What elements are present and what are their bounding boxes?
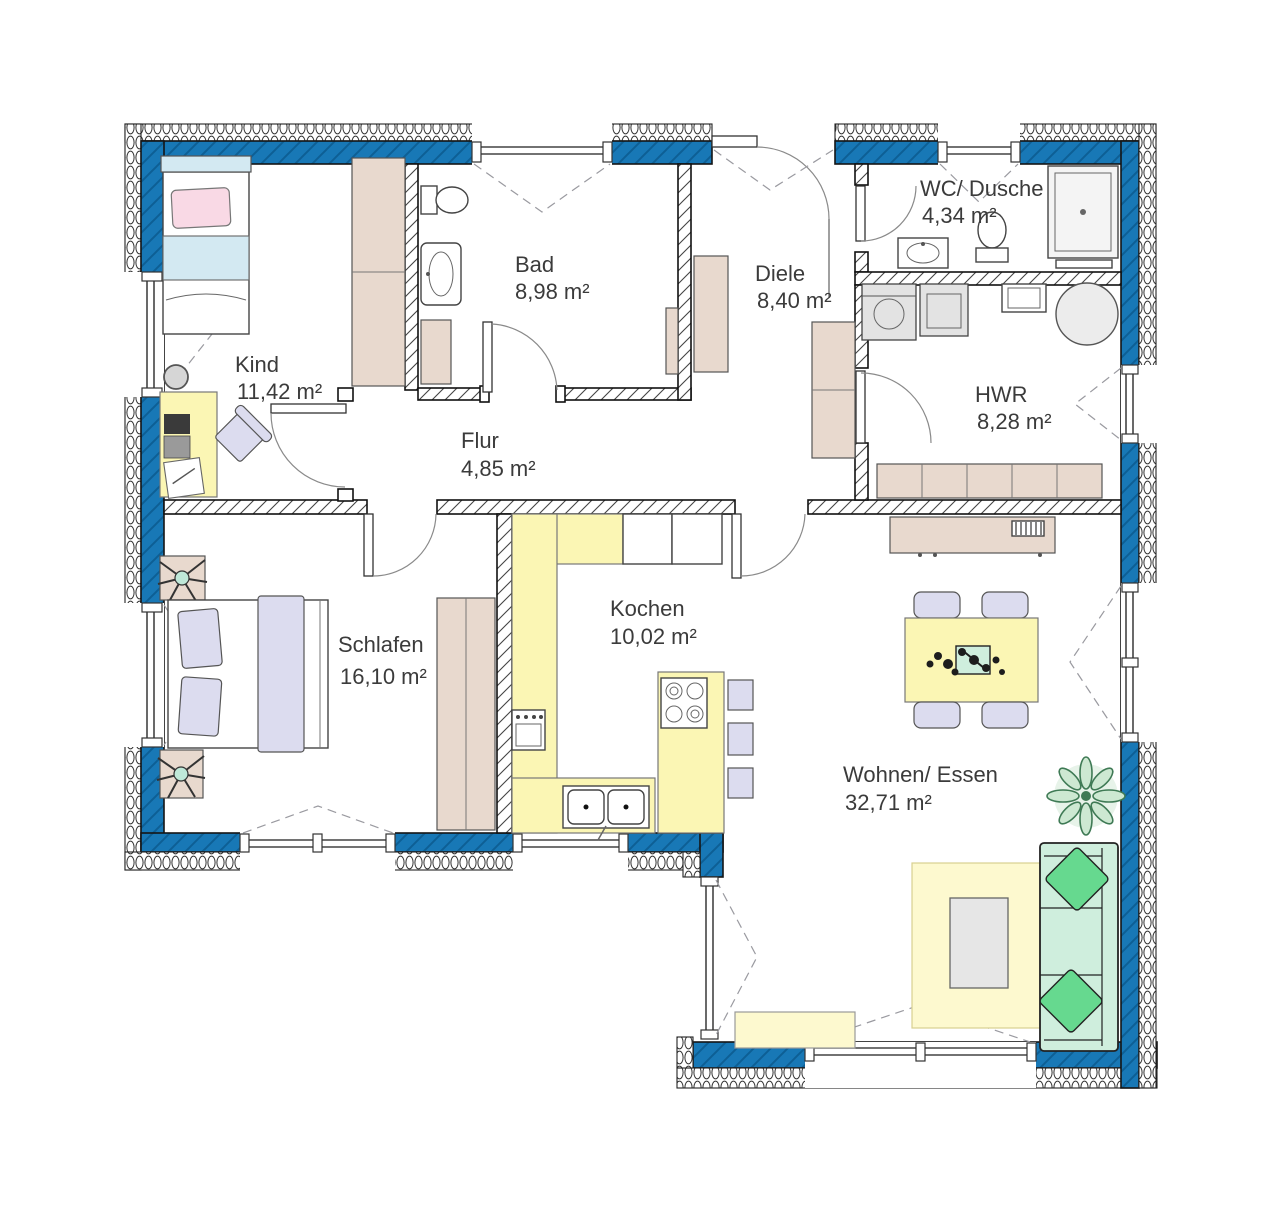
window-dining-right [1070, 583, 1157, 742]
plant-large [1047, 757, 1125, 835]
bar-stool-1 [728, 680, 753, 710]
dining-chair-3 [914, 702, 960, 728]
floor-plan-page: Kind 11,42 m² Bad 8,98 m² Diele 8,40 m² … [0, 0, 1280, 1214]
wall-hwr-wohnen [808, 500, 1121, 514]
wardrobe-diele-west [694, 256, 728, 372]
wall-kind-bad [405, 164, 418, 390]
blanket-blue [163, 236, 249, 280]
furniture-schlafen [157, 556, 495, 830]
wall-bottom-left-block [141, 833, 723, 852]
insulation-top-left [125, 124, 712, 141]
wall-flur-kochen [437, 500, 735, 514]
tap-dot [921, 242, 925, 246]
bar-stool-2 [728, 723, 753, 755]
room-area: 8,98 m² [515, 279, 590, 304]
papers [164, 458, 205, 499]
room-label-bad: Bad 8,98 m² [515, 252, 590, 304]
laptop-screen [164, 414, 190, 434]
oven [512, 710, 545, 750]
dining-chair-1 [914, 592, 960, 618]
door-bad [483, 322, 557, 392]
door-hwr [856, 371, 931, 443]
bed-pillow-south [178, 677, 222, 737]
room-area: 8,28 m² [977, 409, 1052, 434]
wall-wc-stub-north [855, 164, 868, 185]
wall-schlafen-kochen [497, 514, 512, 833]
tap-dot [426, 272, 430, 276]
room-name: HWR [975, 382, 1028, 407]
wall-hwr-stub-south [855, 443, 868, 500]
window-schlafen-bottom [240, 806, 395, 871]
room-name: Kochen [610, 596, 685, 621]
wall-bad-flur-west [418, 388, 488, 400]
wall-bad-flur-east [558, 388, 691, 400]
room-label-hwr: HWR 8,28 m² [975, 382, 1052, 434]
toilet-tank-bad [421, 186, 437, 214]
boiler [1056, 283, 1118, 345]
stool [164, 365, 188, 389]
plant-schlafen-south [157, 750, 205, 798]
insulation-left [125, 124, 141, 870]
cabinet-bad [421, 320, 451, 384]
duvet [258, 596, 304, 752]
room-name: Kind [235, 352, 279, 377]
shelf-bad [666, 308, 678, 374]
floor-plan: Kind 11,42 m² Bad 8,98 m² Diele 8,40 m² … [0, 0, 1280, 1214]
insulation-step-corner-lower [677, 1037, 693, 1068]
toilet-bowl-bad [436, 187, 468, 213]
kitchen-cabinet-white-2 [672, 514, 722, 564]
room-name: Bad [515, 252, 554, 277]
door-post-kind-north [338, 388, 353, 401]
pillow-pink [171, 188, 231, 229]
room-label-wohnen-essen: Wohnen/ Essen 32,71 m² [843, 762, 998, 815]
room-label-kochen: Kochen 10,02 m² [610, 596, 697, 649]
room-area: 32,71 m² [845, 790, 932, 815]
furniture-kochen [512, 514, 753, 840]
shower-drain [1080, 209, 1086, 215]
room-name: Flur [461, 428, 499, 453]
wall-step-corner-upper [700, 833, 723, 877]
lowboard [735, 1012, 855, 1048]
room-area: 4,34 m² [922, 203, 997, 228]
sofa [1038, 843, 1118, 1051]
bar-stool-3 [728, 768, 753, 798]
wall-wc-stub-south [855, 252, 868, 272]
room-area: 11,42 m² [237, 379, 322, 404]
washer [862, 284, 916, 340]
dining-chair-2 [982, 592, 1028, 618]
insulation-step-corner-upper [683, 852, 700, 877]
room-area: 8,40 m² [757, 288, 832, 313]
laptop-keyboard [164, 436, 190, 458]
room-label-flur: Flur 4,85 m² [461, 428, 536, 481]
wall-kind-schlafen [164, 500, 367, 514]
door-wc-dusche [856, 186, 916, 241]
room-label-wc-dusche: WC/ Dusche 4,34 m² [920, 176, 1043, 228]
room-name: Schlafen [338, 632, 424, 657]
room-name: Diele [755, 261, 805, 286]
window-hwr-right [1075, 365, 1157, 443]
furniture-diele [694, 256, 855, 458]
coffee-table [950, 898, 1008, 988]
room-area: 4,85 m² [461, 456, 536, 481]
kitchen-cabinet-white-1 [623, 514, 672, 564]
room-label-schlafen: Schlafen 16,10 m² [338, 632, 427, 689]
sideboard [890, 517, 1055, 557]
room-area: 10,02 m² [610, 624, 697, 649]
wall-bad-diele [678, 164, 691, 400]
towel-radiator [1056, 260, 1112, 268]
plant-schlafen-north [158, 556, 207, 601]
cabinet-row-hwr [877, 464, 1102, 498]
furniture-kind [160, 156, 405, 498]
room-label-diele: Diele 8,40 m² [755, 261, 832, 313]
room-name: Wohnen/ Essen [843, 762, 998, 787]
door-wohnen [732, 514, 805, 578]
toilet-tank-wc [976, 248, 1008, 262]
room-area: 16,10 m² [340, 664, 427, 689]
room-name: WC/ Dusche [920, 176, 1043, 201]
bed-pillow-north [178, 608, 223, 668]
dining-chair-4 [982, 702, 1028, 728]
office-chair [211, 404, 273, 466]
door-schlafen [364, 514, 436, 576]
bed-headboard [161, 156, 251, 172]
stove [661, 678, 707, 728]
door-post-kind-south [338, 489, 353, 501]
window-bad [472, 123, 612, 212]
room-label-kind: Kind 11,42 m² [235, 352, 322, 404]
door-kind [271, 404, 346, 487]
